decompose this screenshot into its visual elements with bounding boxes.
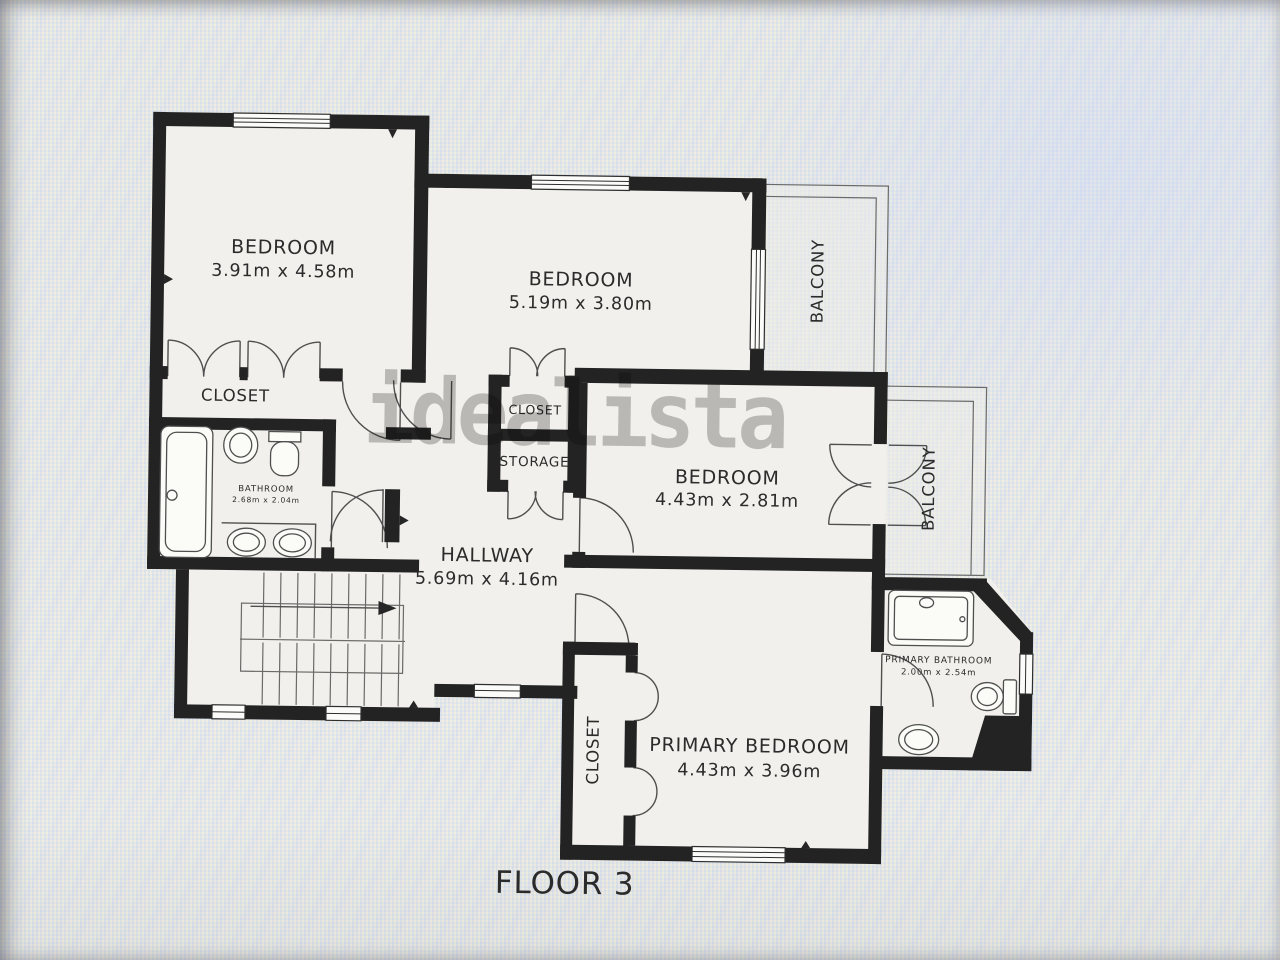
bedroom3-dims: 4.43m x 2.81m	[655, 490, 799, 512]
bathroom-name: BATHROOM	[238, 484, 294, 495]
closet-primary-label: CLOSET	[583, 715, 603, 784]
bidet	[268, 432, 301, 476]
window	[531, 175, 629, 190]
bedroom2-dims: 5.19m x 3.80m	[509, 293, 653, 315]
bedroom1-dims: 3.91m x 4.58m	[211, 261, 355, 283]
sink-primary	[898, 724, 938, 755]
shower	[888, 590, 974, 646]
balcony-right-label: BALCONY	[919, 446, 939, 531]
window	[474, 684, 520, 698]
window	[1019, 654, 1033, 694]
window	[212, 705, 245, 719]
window	[233, 113, 330, 128]
window	[326, 706, 361, 720]
bathtub	[159, 426, 213, 558]
bathroom-dims: 2.68m x 2.04m	[232, 495, 300, 505]
balcony-top-label: BALCONY	[807, 239, 827, 324]
bedroom1-name: BEDROOM	[231, 236, 336, 259]
floor-plan: idealista	[0, 0, 1280, 960]
floor-plan-drawing: BEDROOM 3.91m x 4.58m BEDROOM 5.19m x 3.…	[0, 0, 1280, 960]
hallway-dims: 5.69m x 4.16m	[415, 569, 559, 591]
window	[750, 249, 765, 349]
primary-bedroom-dims: 4.43m x 3.96m	[677, 760, 821, 782]
toilet	[223, 427, 257, 463]
floor-label: FLOOR 3	[495, 865, 635, 903]
primary-bedroom-name: PRIMARY BEDROOM	[649, 734, 850, 759]
idealista-watermark: idealista	[363, 367, 785, 463]
window	[692, 846, 785, 862]
bedroom2-name: BEDROOM	[529, 268, 634, 291]
primary-bathroom-name: PRIMARY BATHROOM	[885, 655, 992, 666]
screen-photo-background: idealista	[0, 0, 1280, 960]
closet-bedroom1-label: CLOSET	[201, 386, 270, 406]
hallway-name: HALLWAY	[440, 544, 533, 567]
primary-bathroom-dims: 2.00m x 2.54m	[901, 667, 976, 678]
